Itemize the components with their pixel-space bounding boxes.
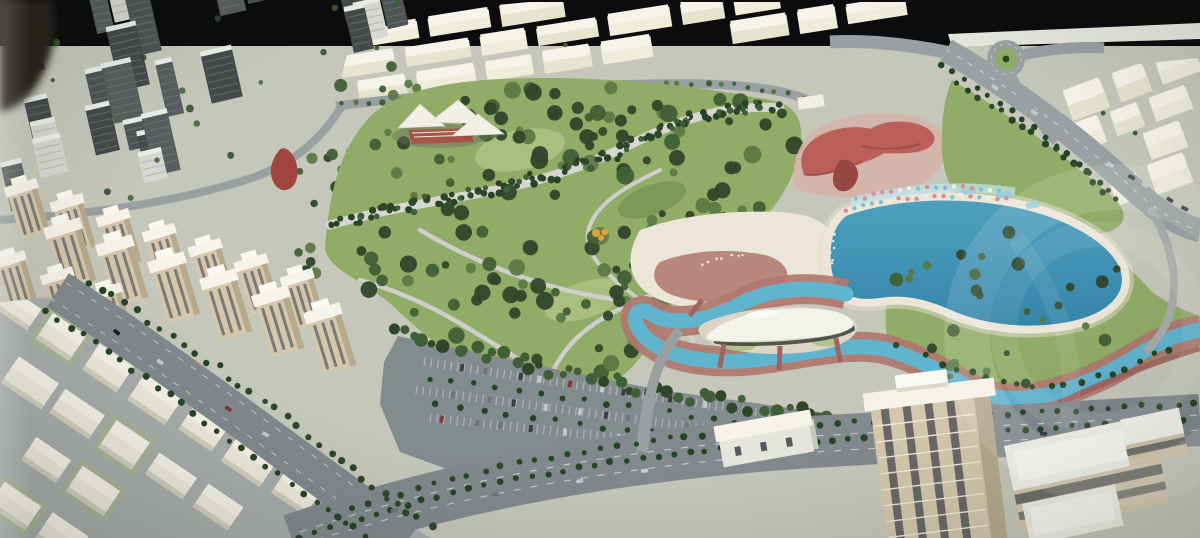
tree <box>725 117 733 125</box>
tree <box>379 226 392 239</box>
lounger <box>730 254 733 257</box>
promenade-palm <box>742 100 749 107</box>
promenade-palm <box>422 194 427 199</box>
median-palm <box>829 437 836 444</box>
tree <box>357 246 367 256</box>
avenue-palm <box>1064 150 1071 157</box>
umbrella <box>880 190 884 194</box>
tree <box>320 49 326 55</box>
avenue-palm <box>227 439 232 444</box>
tree <box>713 93 726 106</box>
parking-palm <box>503 412 509 418</box>
tiny-figure <box>634 138 636 140</box>
tree <box>627 105 636 114</box>
promenade-palm <box>333 221 339 227</box>
street-tree <box>354 100 359 105</box>
promenade-palm <box>446 197 451 202</box>
tree <box>384 129 391 136</box>
promenade-palm <box>554 176 561 183</box>
promenade-palm <box>357 214 364 221</box>
lounger <box>832 240 834 242</box>
median-palm <box>845 436 851 442</box>
avenue-palm <box>329 451 336 458</box>
parking-entry-road <box>642 396 650 452</box>
tree <box>574 368 582 376</box>
canal-palm <box>1165 347 1172 354</box>
avenue-palm <box>275 470 281 476</box>
tree <box>1024 308 1031 315</box>
tree <box>787 404 794 411</box>
verge-palm <box>634 442 639 447</box>
median-palm <box>606 458 613 465</box>
promenade-palm <box>736 105 742 111</box>
tree <box>448 327 465 344</box>
lounger <box>778 247 781 250</box>
tiny-figure <box>473 191 475 193</box>
tree <box>908 269 914 275</box>
promenade-palm <box>435 201 441 207</box>
tree <box>742 406 753 417</box>
tree <box>466 263 476 273</box>
promenade-palm <box>604 154 611 161</box>
tree <box>923 261 932 270</box>
tree <box>590 105 606 121</box>
promenade-palm <box>753 99 758 104</box>
tree <box>759 118 771 130</box>
tree <box>483 169 496 182</box>
sculpture-lobe <box>598 235 604 241</box>
tree <box>215 15 221 21</box>
verge-palm <box>1020 409 1026 415</box>
promenade-palm <box>648 134 654 140</box>
median-palm <box>624 458 630 464</box>
sculpture-lobe <box>592 229 600 237</box>
avenue-palm <box>326 507 331 512</box>
promenade-palm <box>616 142 624 150</box>
avenue-palm <box>965 88 971 94</box>
avenue-palm <box>226 376 232 382</box>
avenue-palm <box>1076 161 1082 167</box>
promenade-palm <box>508 178 515 185</box>
promenade-palm <box>587 165 594 172</box>
avenue-palm <box>171 333 177 339</box>
promenade-palm <box>395 205 400 210</box>
tiny-figure <box>581 165 583 167</box>
tree <box>522 363 534 375</box>
verge-palm <box>532 457 537 462</box>
tree <box>488 348 496 356</box>
tree <box>1096 275 1109 288</box>
median-palm <box>513 475 519 481</box>
tree <box>1066 283 1075 292</box>
tree <box>738 395 746 403</box>
tree <box>515 290 527 302</box>
umbrella <box>923 194 927 198</box>
avenue-palm <box>42 308 49 315</box>
tree <box>613 295 625 307</box>
promenade-palm <box>449 192 455 198</box>
promenade-palm <box>721 111 727 117</box>
verge-palm <box>651 438 656 443</box>
street-tree <box>674 81 679 86</box>
verge-palm <box>680 433 687 440</box>
promenade-palm <box>562 169 568 175</box>
promenade-palm <box>369 207 376 214</box>
umbrella <box>943 186 947 190</box>
umbrella <box>968 194 972 198</box>
tree <box>386 61 397 72</box>
median-palm <box>640 455 646 461</box>
tree <box>659 210 666 217</box>
avenue-palm <box>429 523 437 531</box>
tree <box>520 352 529 361</box>
tree <box>104 188 111 195</box>
verge-palm <box>1088 406 1094 412</box>
promenade-palm <box>503 186 510 193</box>
tree <box>442 261 450 269</box>
tree <box>448 299 460 311</box>
parking-palm <box>448 378 454 384</box>
avenue-palm <box>214 428 220 434</box>
avenue-palm <box>997 101 1003 107</box>
promenade-palm <box>411 209 418 216</box>
umbrella <box>941 194 945 198</box>
tree <box>186 105 194 113</box>
avenue-palm <box>121 299 128 306</box>
parking-palm <box>492 385 498 391</box>
avenue-palm <box>338 457 345 464</box>
tree <box>379 85 386 92</box>
lounger <box>833 233 836 236</box>
tree <box>227 152 234 159</box>
tree <box>404 80 412 88</box>
verge-palm <box>817 422 824 429</box>
tree <box>777 108 787 118</box>
avenue-palm <box>181 342 187 348</box>
avenue-palm <box>201 421 207 427</box>
tree <box>660 385 672 397</box>
umbrella <box>854 196 858 200</box>
promenade-palm <box>483 185 488 190</box>
tree <box>589 132 598 141</box>
promenade-palm <box>597 157 603 163</box>
lounger <box>748 251 750 253</box>
tree <box>459 346 468 355</box>
promenade-palm <box>654 131 662 139</box>
lounger <box>829 252 831 254</box>
median-palm <box>327 524 333 530</box>
canal-palm <box>1110 371 1116 377</box>
median-palm <box>560 469 566 475</box>
umbrella <box>870 201 874 205</box>
tree <box>294 248 303 257</box>
tree <box>598 376 609 387</box>
sculpture-lobe <box>602 229 609 236</box>
tree <box>572 102 584 114</box>
tiny-figure <box>745 109 747 111</box>
tree <box>536 292 554 310</box>
median-palm <box>530 474 535 479</box>
tree <box>617 270 632 285</box>
avenue-palm <box>1055 144 1060 149</box>
promenade-palm <box>776 101 783 108</box>
avenue-palm <box>1070 160 1077 167</box>
tree <box>603 311 613 321</box>
tree <box>361 281 378 298</box>
tree <box>494 111 508 125</box>
tree <box>586 373 598 385</box>
umbrella <box>988 188 992 192</box>
lounger <box>701 263 704 266</box>
promenade-palm <box>702 114 709 121</box>
avenue-palm <box>155 385 161 391</box>
tree <box>759 407 767 415</box>
tree <box>1040 317 1046 323</box>
yellow-playground-sculpture <box>591 227 609 245</box>
umbrella <box>977 195 981 199</box>
tree <box>1113 265 1121 273</box>
verge-palm <box>415 485 421 491</box>
car <box>563 428 567 435</box>
lounger <box>830 262 833 265</box>
parking-palm <box>625 427 631 433</box>
tree <box>482 257 496 271</box>
tree <box>141 55 147 61</box>
lounger <box>833 247 835 249</box>
tree <box>616 377 627 388</box>
street-tree <box>732 82 736 86</box>
parking-palm <box>471 380 476 385</box>
tree <box>476 226 488 238</box>
avenue-palm <box>86 280 92 286</box>
promenade-palm <box>530 180 538 188</box>
umbrella <box>997 189 1001 193</box>
street-tree <box>786 90 791 95</box>
tree <box>414 333 428 347</box>
avenue-palm <box>954 80 959 85</box>
tree <box>410 308 419 317</box>
canal-palm <box>923 352 929 358</box>
tree <box>927 343 937 353</box>
umbrella <box>925 185 929 189</box>
avenue-palm <box>93 339 99 345</box>
avenue-palm <box>54 317 60 323</box>
avenue-palm <box>106 348 113 355</box>
tree <box>497 346 510 359</box>
tree <box>369 139 381 151</box>
tree <box>400 325 409 334</box>
umbrella <box>888 200 892 204</box>
parking-palm <box>538 391 544 397</box>
avenue-palm <box>108 291 114 297</box>
tree <box>744 146 762 164</box>
umbrella <box>879 200 883 204</box>
tree <box>707 188 720 201</box>
canal-palm <box>939 361 946 368</box>
avenue-palm <box>350 523 357 530</box>
umbrella <box>1004 196 1008 200</box>
tree <box>436 339 450 353</box>
promenade-palm <box>769 107 775 113</box>
avenue-palm <box>975 85 981 91</box>
street-tree <box>689 82 694 87</box>
tree <box>618 226 631 239</box>
verge-palm <box>1190 400 1197 407</box>
verge-palm <box>483 469 489 475</box>
tree <box>543 370 553 380</box>
promenade-palm <box>598 151 603 156</box>
parking-palm <box>626 402 632 408</box>
lounger <box>770 250 772 252</box>
street-tree <box>706 80 712 86</box>
verge-palm <box>349 505 355 511</box>
verge-palm <box>598 446 603 451</box>
avenue-palm <box>217 362 223 368</box>
promenade-palm <box>374 214 380 220</box>
avenue-palm <box>157 326 162 331</box>
promenade-palm <box>467 192 473 198</box>
tree <box>603 355 619 371</box>
tree <box>491 275 501 285</box>
promenade-palm <box>451 199 458 206</box>
tree <box>307 153 318 164</box>
lounger <box>741 254 743 256</box>
tree <box>704 391 716 403</box>
tree <box>615 115 627 127</box>
umbrella <box>932 194 936 198</box>
umbrella <box>852 206 856 210</box>
tree <box>670 168 678 176</box>
avenue-palm <box>99 287 106 294</box>
umbrella <box>979 187 983 191</box>
tree <box>454 205 469 220</box>
tree <box>306 257 316 267</box>
avenue-palm <box>402 509 409 516</box>
avenue-palm <box>305 434 311 440</box>
lounger <box>756 250 758 252</box>
parking-palm <box>428 377 433 382</box>
tree <box>729 162 741 174</box>
tree <box>259 80 264 85</box>
tree <box>513 131 526 144</box>
promenade-palm <box>624 147 629 152</box>
tree <box>669 150 685 166</box>
tree <box>504 82 521 99</box>
tree <box>547 105 563 121</box>
verge-palm <box>852 418 857 423</box>
tree <box>391 167 403 179</box>
promenade-palm <box>465 187 471 193</box>
avenue-palm <box>1009 117 1016 124</box>
avenue-palm <box>1009 107 1015 113</box>
umbrella <box>871 192 875 196</box>
promenade-palm <box>680 121 685 126</box>
verge-palm <box>564 451 570 457</box>
avenue-palm <box>350 464 357 471</box>
lounger <box>715 257 718 260</box>
umbrella <box>896 196 900 200</box>
umbrella <box>863 196 867 200</box>
tree <box>310 200 317 207</box>
avenue-palm <box>143 373 150 380</box>
verge-palm <box>548 456 554 462</box>
promenade-palm <box>617 152 622 157</box>
verge-palm <box>1106 406 1111 411</box>
avenue-palm <box>167 390 174 397</box>
parking-palm <box>578 421 583 426</box>
car <box>451 391 455 398</box>
median-palm <box>481 482 486 487</box>
promenade-palm <box>527 171 532 176</box>
promenade-palm <box>496 180 502 186</box>
umbrella <box>995 197 999 201</box>
median-palm <box>497 479 503 485</box>
tree <box>402 275 414 287</box>
tree <box>332 5 338 11</box>
promenade-palm <box>380 203 388 211</box>
avenue-palm <box>300 491 307 498</box>
verge-palm <box>1121 403 1127 409</box>
umbrella <box>959 193 963 197</box>
promenade-palm <box>742 110 748 116</box>
promenade-palm <box>457 196 462 201</box>
tree <box>400 256 417 273</box>
umbrella <box>844 209 848 213</box>
avenue-palm <box>938 62 945 69</box>
parking-palm <box>711 415 717 421</box>
promenade-palm <box>387 203 394 210</box>
tree <box>53 39 61 47</box>
verge-palm <box>582 450 587 455</box>
promenade-palm <box>727 107 734 114</box>
avenue-palm <box>413 513 420 520</box>
tree <box>428 340 435 347</box>
median-palm <box>433 495 439 501</box>
avenue-palm <box>949 68 955 74</box>
tree <box>631 388 641 398</box>
parking-palm <box>603 401 610 408</box>
street-tree <box>379 99 385 105</box>
canal-palm <box>1121 366 1128 373</box>
tree <box>327 149 338 160</box>
tree <box>905 275 913 283</box>
tree <box>652 100 663 111</box>
verge-palm <box>365 500 372 507</box>
median-palm <box>312 530 317 535</box>
promenade-palm <box>659 123 664 128</box>
avenue-palm <box>262 464 268 470</box>
bridge <box>777 346 783 370</box>
tree <box>369 264 381 276</box>
verge-palm <box>614 442 621 449</box>
avenue-palm <box>235 383 241 389</box>
verge-palm <box>517 459 523 465</box>
tree <box>893 342 899 348</box>
tree <box>643 156 651 164</box>
avenue-palm <box>144 320 150 326</box>
roundabout-palm <box>1003 56 1010 63</box>
avenue-palm <box>316 442 322 448</box>
median-palm <box>418 496 425 503</box>
tree <box>551 288 560 297</box>
tree <box>616 167 634 185</box>
verge-palm <box>699 433 706 440</box>
street-tree <box>719 82 724 87</box>
promenade-palm <box>329 222 334 227</box>
tree <box>616 130 629 143</box>
tree <box>1082 322 1090 330</box>
tree <box>696 198 711 213</box>
